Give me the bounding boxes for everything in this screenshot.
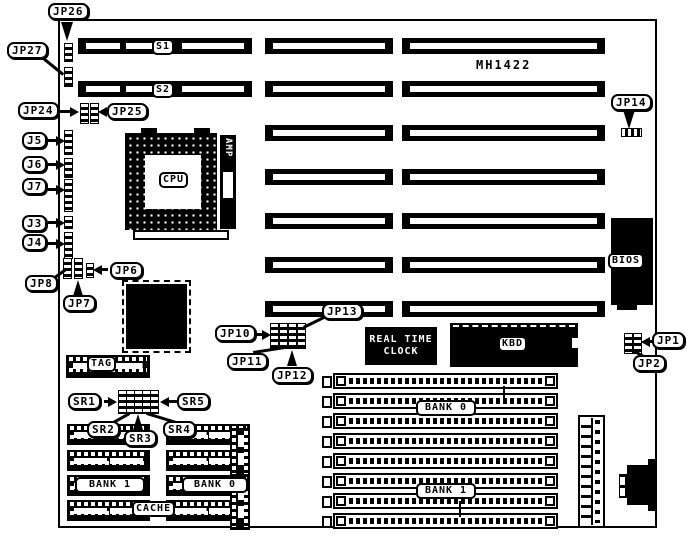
callout-j5: J5 <box>22 132 47 149</box>
pointer-jp25-arrow <box>98 107 107 117</box>
rtc-label-line2: CLOCK <box>365 346 437 358</box>
amp-label: AMP <box>223 138 233 157</box>
expansion-slot-bar <box>402 301 605 317</box>
pointer-bank0 <box>503 386 505 402</box>
tag-label: TAG <box>87 356 116 372</box>
cpu-socket-tab <box>194 128 210 134</box>
din-pin-slot <box>620 477 625 485</box>
callout-sr5: SR5 <box>177 393 210 410</box>
callout-jp27: JP27 <box>7 42 48 59</box>
simm-socket <box>333 453 558 469</box>
callout-jp12: JP12 <box>272 367 313 384</box>
jumper-j5 <box>64 130 73 155</box>
jumper-j6 <box>64 158 73 178</box>
slot-s1-label: S1 <box>152 39 174 55</box>
motherboard-diagram: S1 S2 MH1422 CPU AMP TAG BANK 1 BANK 0 C… <box>0 0 700 541</box>
simm-tab <box>322 436 332 448</box>
vertical-chip <box>230 428 250 477</box>
simm-bank0-label: BANK 0 <box>416 400 476 416</box>
cache-label: CACHE <box>132 501 175 517</box>
callout-j6: J6 <box>22 156 47 173</box>
callout-jp2: JP2 <box>633 355 666 372</box>
callout-jp7: JP7 <box>63 295 96 312</box>
callout-sr3: SR3 <box>124 430 157 447</box>
cache-bank1-label: BANK 1 <box>75 477 145 493</box>
rtc-chip: REAL TIME CLOCK <box>365 327 437 365</box>
callout-jp14: JP14 <box>611 94 652 111</box>
jumper-jp7 <box>74 258 83 279</box>
simm-bank1-label: BANK 1 <box>416 483 476 499</box>
cpu-socket-lever <box>133 230 229 240</box>
board-model-text: MH1422 <box>476 58 531 72</box>
pointer-j4-arrow <box>56 239 65 249</box>
jumper-j3 <box>64 216 73 229</box>
kbd-label: KBD <box>498 336 527 352</box>
pointer-sr5-arrow <box>160 397 169 407</box>
jumper-jp26 <box>64 43 73 62</box>
pointer-bank1 <box>459 501 461 517</box>
bios-label: BIOS <box>608 253 644 269</box>
cache-bank0-label: BANK 0 <box>182 477 248 493</box>
power-connector <box>578 415 605 528</box>
jumper-sr5 <box>150 390 159 414</box>
simm-tab <box>322 376 332 388</box>
pointer-jp26 <box>61 22 73 41</box>
expansion-slot-bar <box>265 213 393 229</box>
pointer-jp12 <box>287 350 297 366</box>
pointer-j5-arrow <box>56 136 65 146</box>
callout-jp6: JP6 <box>110 262 143 279</box>
din-pin-slot <box>620 488 625 496</box>
callout-sr1: SR1 <box>68 393 101 410</box>
pointer-jp24-arrow <box>70 107 79 117</box>
expansion-slot-bar <box>265 38 393 54</box>
simm-socket <box>333 433 558 449</box>
callout-jp11: JP11 <box>227 353 268 370</box>
simm-tab <box>322 496 332 508</box>
jumper-jp10 <box>270 323 279 349</box>
pointer-jp6-arrow <box>93 265 102 275</box>
expansion-slot-bar <box>265 169 393 185</box>
callout-j3: J3 <box>22 215 47 232</box>
pointer-j6-arrow <box>56 160 65 170</box>
expansion-slot-bar <box>402 38 605 54</box>
expansion-slot-bar <box>402 81 605 97</box>
pointer-sr3 <box>133 414 143 430</box>
callout-jp24: JP24 <box>18 102 59 119</box>
jumper-jp24 <box>80 103 89 124</box>
jumper-jp12 <box>288 323 297 349</box>
simm-socket <box>333 373 558 389</box>
simm-tab <box>322 396 332 408</box>
jumper-j7 <box>64 179 73 212</box>
pointer-jp7 <box>73 280 83 296</box>
jumper-jp14 <box>621 128 642 137</box>
keyboard-din-connector <box>627 465 657 505</box>
pointer-j7-arrow <box>56 185 65 195</box>
jumper-j4 <box>64 232 73 259</box>
expansion-slot-bar <box>265 257 393 273</box>
chipset-qfp <box>126 284 187 349</box>
callout-jp25: JP25 <box>107 103 148 120</box>
jumper-jp27 <box>64 67 73 87</box>
callout-jp10: JP10 <box>215 325 256 342</box>
cpu-socket-tab <box>141 128 157 134</box>
callout-jp26: JP26 <box>48 3 89 20</box>
pointer-jp14 <box>623 110 635 129</box>
callout-sr4: SR4 <box>163 421 196 438</box>
expansion-slot-bar <box>265 125 393 141</box>
simm-socket <box>333 513 558 529</box>
callout-jp1: JP1 <box>652 332 685 349</box>
simm-tab <box>322 416 332 428</box>
jumper-jp1 <box>624 333 633 354</box>
bios-chip-tab <box>617 305 637 310</box>
cache-chip <box>67 450 150 471</box>
callout-jp13: JP13 <box>322 303 363 320</box>
amp-socket-strip: AMP <box>220 135 236 229</box>
simm-tab <box>322 476 332 488</box>
expansion-slot-bar <box>265 81 393 97</box>
pointer-sr1-arrow <box>108 397 117 407</box>
cpu-label: CPU <box>159 172 188 188</box>
callout-j4: J4 <box>22 234 47 251</box>
expansion-slot-bar <box>402 257 605 273</box>
simm-tab <box>322 516 332 528</box>
slot-s2-label: S2 <box>152 82 174 98</box>
simm-tab <box>322 456 332 468</box>
pointer-jp1-arrow <box>641 337 650 347</box>
callout-jp8: JP8 <box>25 275 58 292</box>
expansion-slot-bar <box>402 125 605 141</box>
callout-j7: J7 <box>22 178 47 195</box>
pointer-jp10-arrow <box>262 330 271 340</box>
expansion-slot-bar <box>402 169 605 185</box>
rtc-label-line1: REAL TIME <box>365 334 437 346</box>
callout-sr2: SR2 <box>87 421 120 438</box>
expansion-slot-bar <box>402 213 605 229</box>
pointer-j3-arrow <box>56 218 65 228</box>
